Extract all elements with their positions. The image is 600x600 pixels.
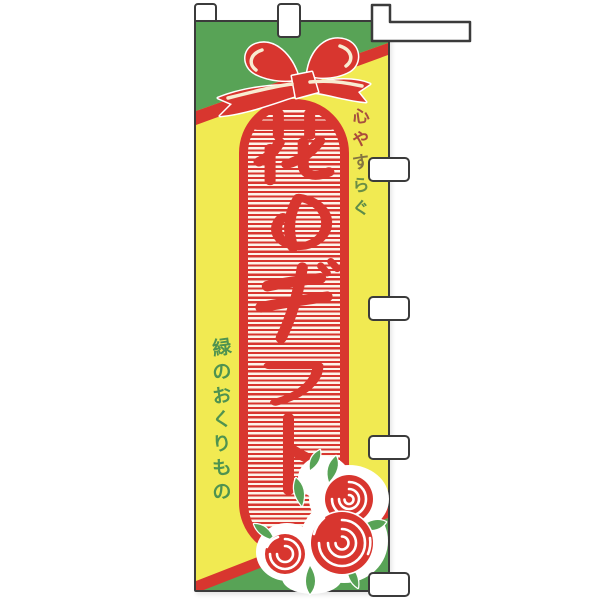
- left-phrase: 緑のおくりもの: [210, 336, 234, 504]
- title-char-fu: [248, 350, 340, 408]
- product-photo: 花のギフト: [0, 0, 600, 600]
- pole-tab-top-center: [277, 3, 301, 38]
- title-char-no: [248, 190, 340, 254]
- title-char-gi: [248, 258, 340, 346]
- bow-knot: [292, 72, 318, 98]
- vertical-char: の: [208, 478, 235, 505]
- pole-tab-side-3: [368, 435, 410, 460]
- rose-small: [265, 534, 305, 574]
- rose-large: [311, 512, 373, 574]
- pole-tab-side-2: [368, 296, 410, 321]
- pole-tab-side-4: [368, 572, 410, 597]
- nobori-flag: 花のギフト: [194, 20, 390, 592]
- title-vertical-text: 花のギフト: [248, 108, 340, 500]
- pole-tab-side-1: [368, 157, 410, 182]
- pole-tab-top-right: [369, 2, 473, 44]
- vertical-char: ぐ: [349, 197, 374, 223]
- ribbon-bow-icon: [204, 34, 376, 130]
